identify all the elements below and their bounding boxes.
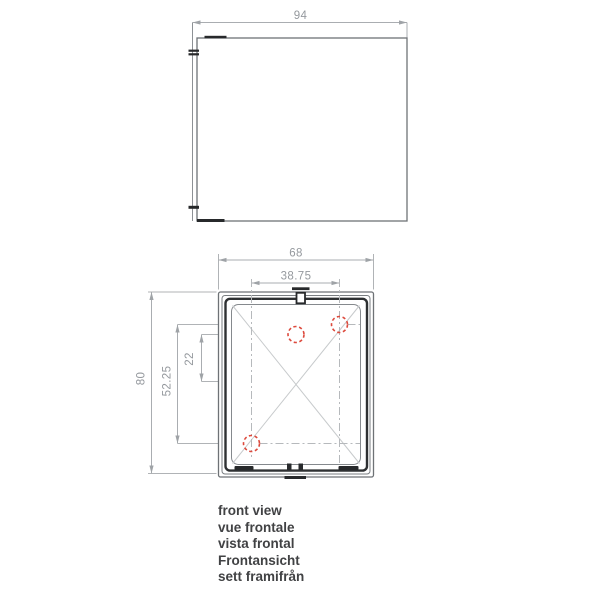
dim-22-label: 22 [184, 352, 196, 366]
plate-clip-top2 [189, 53, 200, 55]
caption-de: Frontansicht [218, 553, 304, 570]
dimension-hole-offset: 22 [184, 335, 204, 382]
seam-top [205, 36, 227, 38]
arrow-left-icon [193, 20, 201, 24]
top-clip-bar [292, 287, 310, 290]
bottom-clip-left [287, 464, 292, 471]
dimension-hole-span-y: 52.25 [162, 325, 180, 444]
technical-drawing-page: 94 68 [0, 0, 600, 600]
dimension-depth-94: 94 [193, 10, 408, 25]
dim-38-75-label: 38.75 [281, 271, 312, 283]
bottom-foot-right [339, 466, 359, 470]
caption-en: front view [218, 503, 304, 520]
dimension-hole-span-x: 38.75 [252, 271, 340, 286]
dim-80-label: 80 [136, 372, 148, 386]
dim-94-label: 94 [294, 10, 308, 22]
caption-fr: vue frontale [218, 520, 304, 537]
caption-es: vista frontal [218, 536, 304, 553]
dim-52-25-label: 52.25 [162, 366, 174, 397]
bottom-clip-bar [285, 476, 307, 479]
top-clip-tab [297, 293, 306, 304]
seam-bottom [197, 219, 225, 222]
caption-sv: sett framifrån [218, 569, 304, 586]
bottom-clip-right [299, 464, 304, 471]
arrow-right-icon [399, 20, 407, 24]
dimension-width-68: 68 [219, 248, 374, 263]
side-view: 94 [189, 10, 408, 222]
plate-clip-bottom [189, 206, 200, 209]
caption-block: front view vue frontale vista frontal Fr… [218, 503, 304, 586]
dim-68-label: 68 [289, 248, 303, 260]
dimension-height-80: 80 [136, 292, 154, 474]
bottom-foot-left [235, 466, 254, 470]
housing-body-outline [197, 38, 407, 221]
front-view: 68 38.75 80 [136, 248, 374, 480]
plate-clip-top [189, 50, 200, 52]
